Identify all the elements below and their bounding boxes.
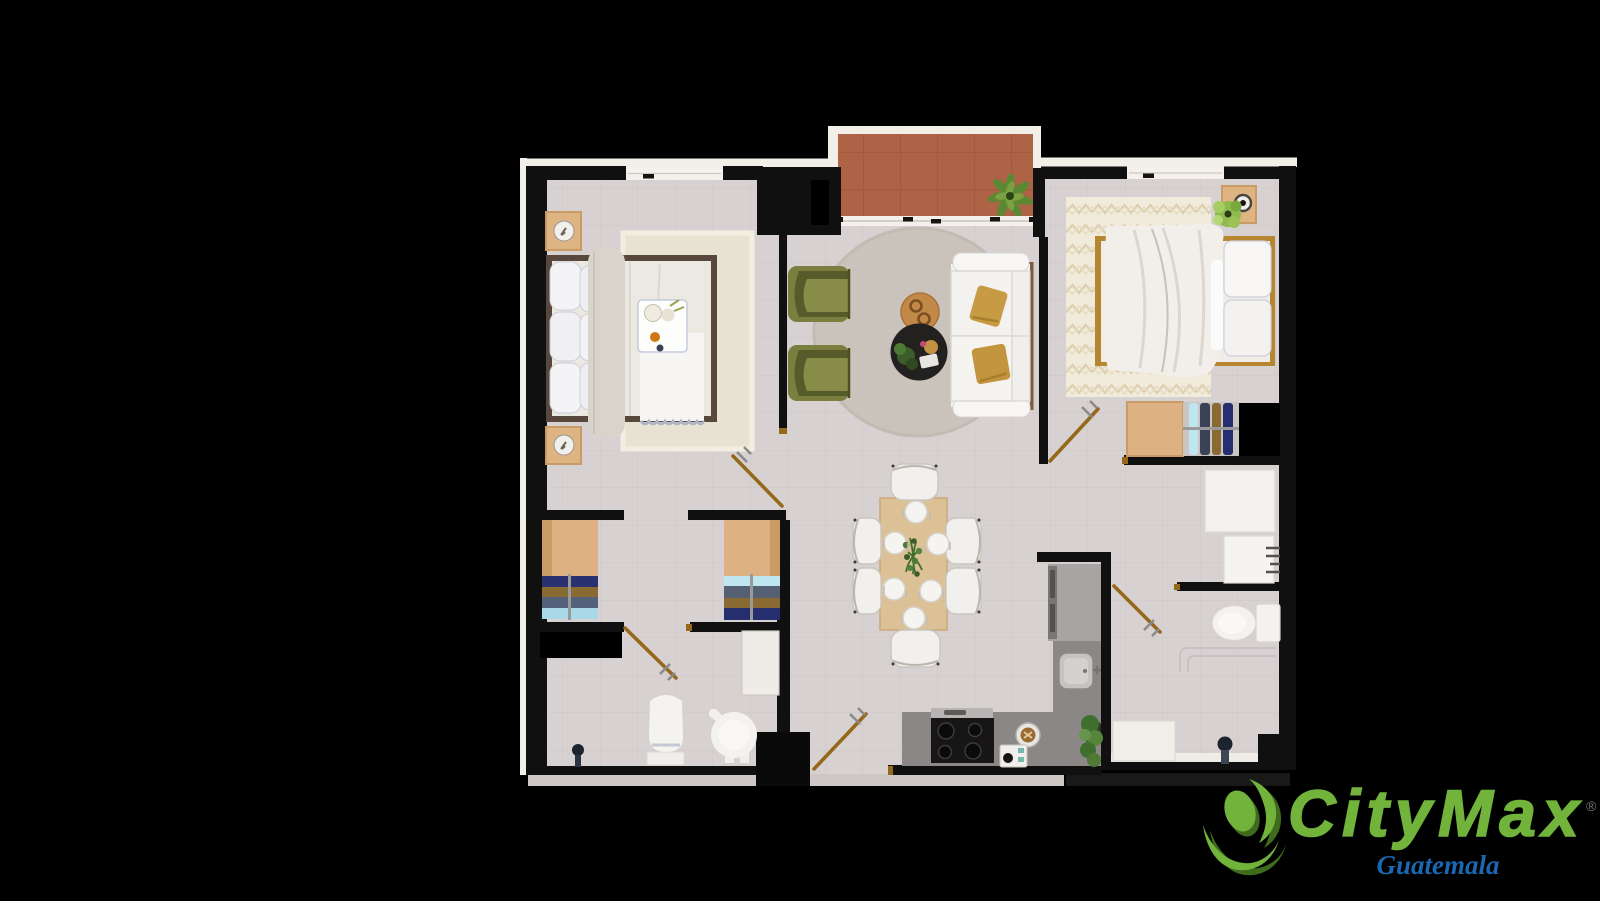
svg-text:®: ® <box>1586 798 1597 814</box>
svg-text:Guatemala: Guatemala <box>1376 850 1499 880</box>
